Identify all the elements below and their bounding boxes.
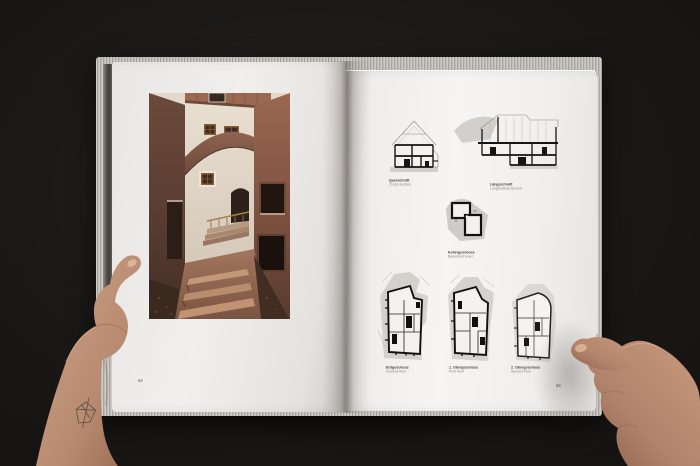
caption-en: Longitudinal section bbox=[490, 187, 610, 191]
page-number-right-value: 65 bbox=[556, 384, 561, 388]
figure-basement-plan bbox=[440, 193, 494, 245]
figure-cross-section bbox=[388, 117, 440, 179]
photograph-of-open-book: 64 Querschnitt Cross section bbox=[0, 0, 700, 466]
attic-window bbox=[209, 93, 225, 102]
figure-longitudinal-section bbox=[452, 107, 564, 175]
caption-en: Basement level bbox=[448, 255, 568, 259]
wrist-tattoo bbox=[73, 395, 98, 429]
hand-soft-shadow-on-page bbox=[534, 319, 604, 429]
page-number-left: 64 bbox=[138, 379, 143, 383]
page-number-right: 65 bbox=[556, 384, 561, 388]
caption-longitudinal-section: Längsschnitt Longitudinal section bbox=[490, 183, 610, 197]
figure-ground-floor-plan bbox=[376, 270, 438, 364]
page-number-left-value: 64 bbox=[138, 379, 143, 383]
caption-basement-plan: Kellergeschoss Basement level bbox=[448, 251, 568, 265]
figure-first-floor-plan bbox=[442, 273, 502, 363]
right-page: Querschnitt Cross section Längsschnitt L… bbox=[346, 70, 596, 411]
courtyard-alley-photo bbox=[149, 93, 290, 319]
right-page-fore-edge bbox=[596, 76, 600, 334]
left-page: 64 bbox=[112, 62, 346, 412]
left-wall-opening bbox=[167, 201, 183, 259]
